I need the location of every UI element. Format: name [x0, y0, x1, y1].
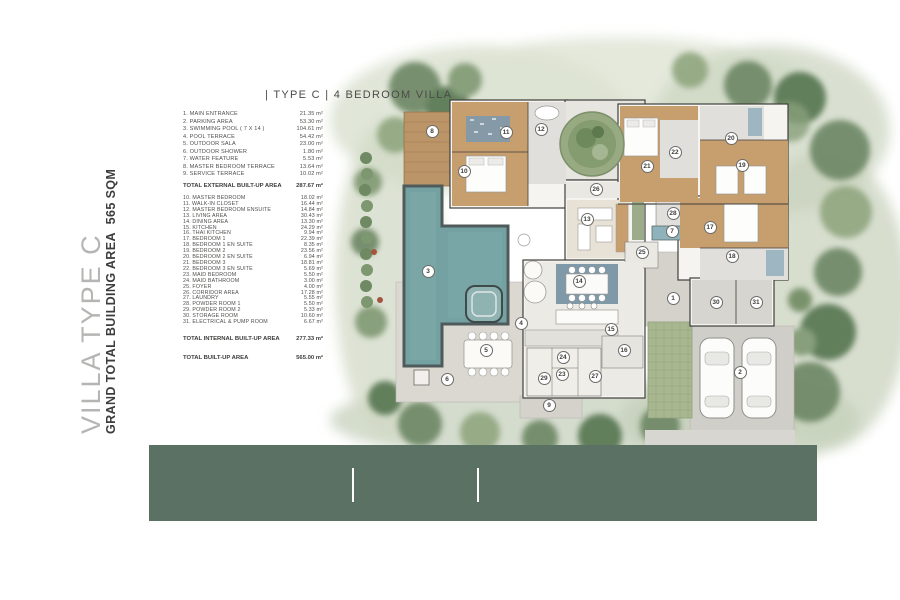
plan-marker-10: 10 — [458, 165, 471, 178]
plan-marker-14: 14 — [573, 275, 586, 288]
legend-row: 4. POOL TERRACE54.42 m² — [183, 134, 323, 142]
plan-marker-19: 19 — [736, 159, 749, 172]
plan-marker-16: 16 — [618, 344, 631, 357]
internal-areas-list: 10. MASTER BEDROOM18.02 m²11. WALK-IN CL… — [183, 196, 323, 326]
plan-marker-5: 5 — [480, 344, 493, 357]
legend-row: 9. SERVICE TERRACE10.02 m² — [183, 171, 323, 179]
legend-row-label: 3. SWIMMING POOL ( 7 X 14 ) — [183, 126, 265, 134]
plan-marker-30: 30 — [710, 296, 723, 309]
external-total-label: TOTAL EXTERNAL BUILT-UP AREA — [183, 183, 282, 191]
legend-row-label: 5. OUTDOOR SALA — [183, 141, 236, 149]
plan-marker-18: 18 — [726, 250, 739, 263]
legend-row-value: 21.35 m² — [300, 111, 323, 119]
external-areas-list: 1. MAIN ENTRANCE21.35 m²2. PARKING AREA5… — [183, 111, 323, 179]
plan-marker-31: 31 — [750, 296, 763, 309]
legend-row-value: 53.30 m² — [300, 119, 323, 127]
internal-total-row: TOTAL INTERNAL BUILT-UP AREA 277.33 m² — [183, 336, 323, 344]
plan-marker-15: 15 — [605, 323, 618, 336]
internal-total-value: 277.33 m² — [296, 336, 323, 344]
legend-row-value: 5.53 m² — [303, 156, 323, 164]
plan-marker-2: 2 — [734, 366, 747, 379]
page: VILLA TYPE C GRAND TOTAL BUILDING AREA 5… — [0, 0, 900, 600]
footer-divider-tick — [352, 468, 354, 502]
legend-row-value: 1.80 m² — [303, 149, 323, 157]
plan-marker-3: 3 — [422, 265, 435, 278]
plan-marker-13: 13 — [581, 213, 594, 226]
plan-marker-21: 21 — [641, 160, 654, 173]
plan-marker-26: 26 — [590, 183, 603, 196]
plan-marker-27: 27 — [589, 370, 602, 383]
legend-row-value: 54.42 m² — [300, 134, 323, 142]
legend-row-label: 2. PARKING AREA — [183, 119, 233, 127]
plan-marker-17: 17 — [704, 221, 717, 234]
legend-row-value: 13.64 m² — [300, 164, 323, 172]
plan-marker-28: 28 — [667, 207, 680, 220]
legend-row: 5. OUTDOOR SALA23.00 m² — [183, 141, 323, 149]
footer-divider-tick — [477, 468, 479, 502]
page-title: | TYPE C | 4 BEDROOM VILLA — [265, 89, 452, 101]
plan-marker-22: 22 — [669, 146, 682, 159]
grand-total-row: TOTAL BUILT-UP AREA 565.00 m² — [183, 355, 323, 363]
plan-marker-25: 25 — [636, 246, 649, 259]
grand-total-label: TOTAL BUILT-UP AREA — [183, 355, 248, 363]
courtyard-garden — [560, 112, 624, 176]
legend-row: 3. SWIMMING POOL ( 7 X 14 )104.61 m² — [183, 126, 323, 134]
plan-marker-1: 1 — [667, 292, 680, 305]
legend-row-value: 23.00 m² — [300, 141, 323, 149]
legend-row: 8. MASTER BEDROOM TERRACE13.64 m² — [183, 164, 323, 172]
plan-marker-7: 7 — [666, 225, 679, 238]
footer-band — [149, 445, 817, 521]
legend-row-value: 6.67 m² — [304, 320, 323, 326]
external-total-value: 287.67 m² — [296, 183, 323, 191]
area-legend: 1. MAIN ENTRANCE21.35 m²2. PARKING AREA5… — [183, 111, 323, 363]
plan-marker-29: 29 — [538, 372, 551, 385]
legend-row: 7. WATER FEATURE5.53 m² — [183, 156, 323, 164]
external-total-row: TOTAL EXTERNAL BUILT-UP AREA 287.67 m² — [183, 183, 323, 191]
legend-row-label: 9. SERVICE TERRACE — [183, 171, 245, 179]
legend-row-label: 31. ELECTRICAL & PUMP ROOM — [183, 320, 268, 326]
legend-row: 6. OUTDOOR SHOWER1.80 m² — [183, 149, 323, 157]
legend-row-label: 8. MASTER BEDROOM TERRACE — [183, 164, 275, 172]
plan-marker-12: 12 — [535, 123, 548, 136]
legend-row: 1. MAIN ENTRANCE21.35 m² — [183, 111, 323, 119]
internal-total-label: TOTAL INTERNAL BUILT-UP AREA — [183, 336, 280, 344]
legend-row-value: 104.61 m² — [296, 126, 323, 134]
plan-marker-4: 4 — [515, 317, 528, 330]
legend-row-label: 7. WATER FEATURE — [183, 156, 238, 164]
grand-total-value: 565.00 m² — [296, 355, 323, 363]
legend-row-label: 4. POOL TERRACE — [183, 134, 235, 142]
plan-marker-24: 24 — [557, 351, 570, 364]
legend-row-label: 6. OUTDOOR SHOWER — [183, 149, 247, 157]
plan-marker-8: 8 — [426, 125, 439, 138]
legend-row-value: 10.02 m² — [300, 171, 323, 179]
legend-row-label: 1. MAIN ENTRANCE — [183, 111, 238, 119]
plan-marker-23: 23 — [556, 368, 569, 381]
plan-marker-11: 11 — [500, 126, 513, 139]
legend-row: 2. PARKING AREA53.30 m² — [183, 119, 323, 127]
legend-row: 31. ELECTRICAL & PUMP ROOM6.67 m² — [183, 320, 323, 326]
plan-marker-9: 9 — [543, 399, 556, 412]
plan-marker-20: 20 — [725, 132, 738, 145]
plan-marker-6: 6 — [441, 373, 454, 386]
